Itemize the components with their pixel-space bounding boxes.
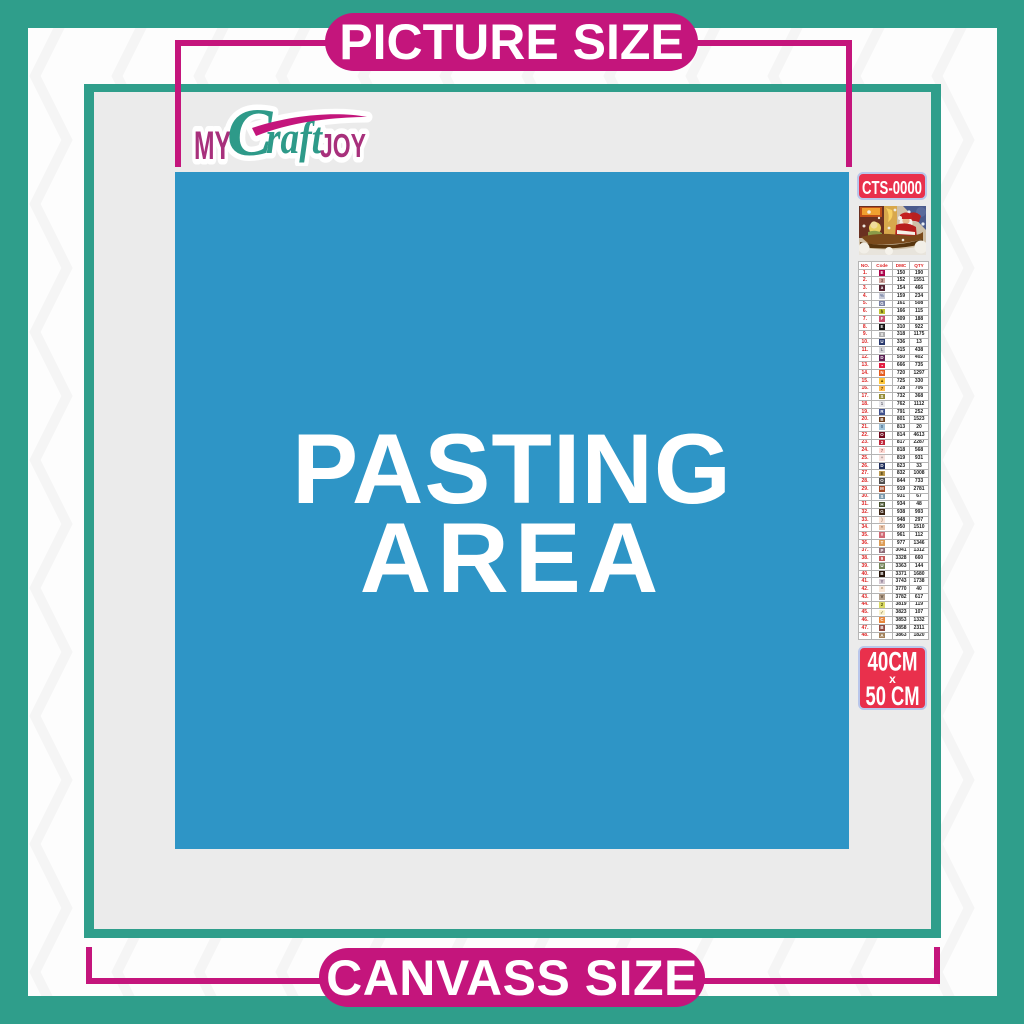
svg-text:CTS-0000: CTS-0000 (862, 177, 922, 198)
svg-text:50 CM: 50 CM (866, 681, 920, 708)
svg-text:MY: MY (194, 124, 231, 166)
svg-text:JOY: JOY (320, 127, 366, 164)
